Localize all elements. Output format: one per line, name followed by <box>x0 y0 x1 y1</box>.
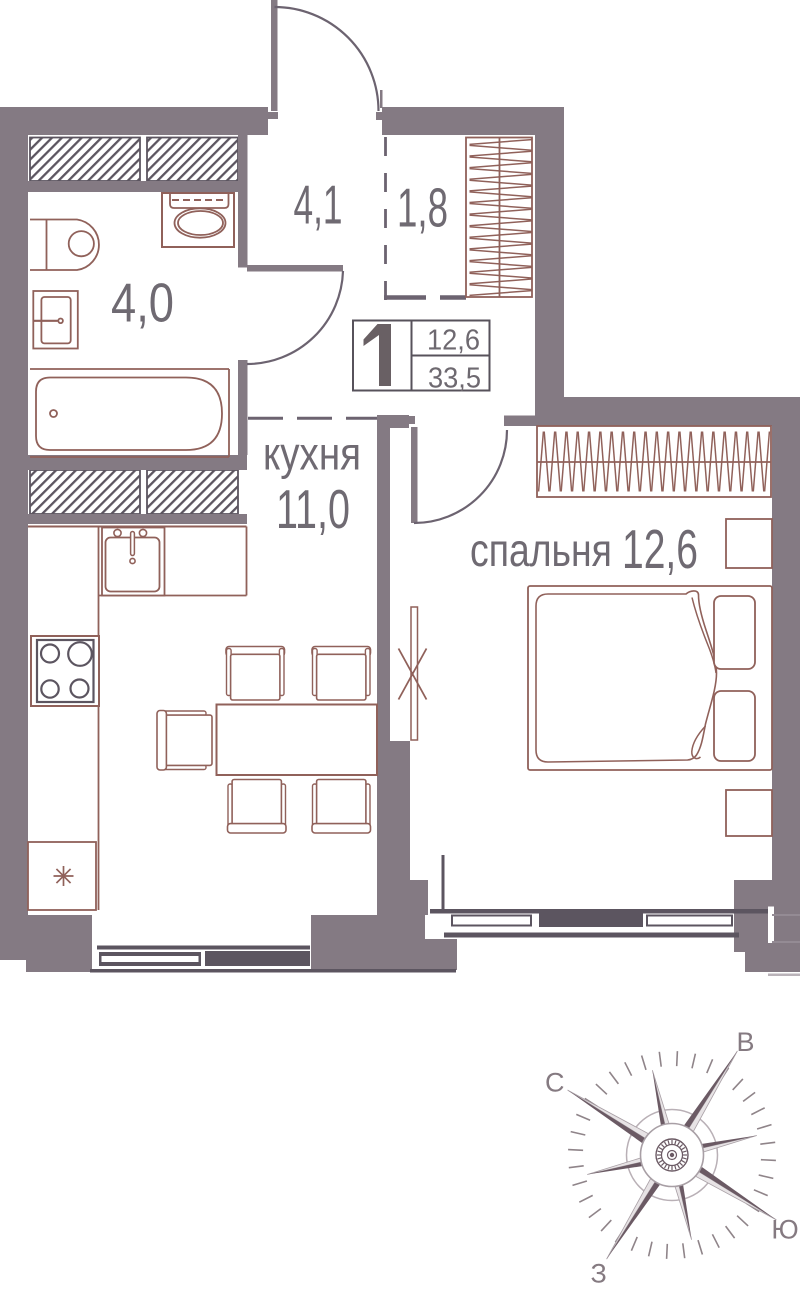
svg-text:В: В <box>736 1027 754 1057</box>
svg-text:1,8: 1,8 <box>397 177 448 238</box>
svg-text:12,6: 12,6 <box>622 520 698 581</box>
svg-text:4,0: 4,0 <box>111 271 174 333</box>
svg-text:33,5: 33,5 <box>428 362 481 394</box>
svg-text:З: З <box>590 1259 606 1287</box>
svg-text:11,0: 11,0 <box>276 480 350 541</box>
svg-text:спальня: спальня <box>470 524 612 576</box>
svg-text:Ю: Ю <box>771 1215 798 1245</box>
svg-text:12,6: 12,6 <box>427 324 480 356</box>
svg-text:кухня: кухня <box>263 428 361 479</box>
svg-text:С: С <box>545 1068 565 1098</box>
svg-text:4,1: 4,1 <box>294 173 343 235</box>
